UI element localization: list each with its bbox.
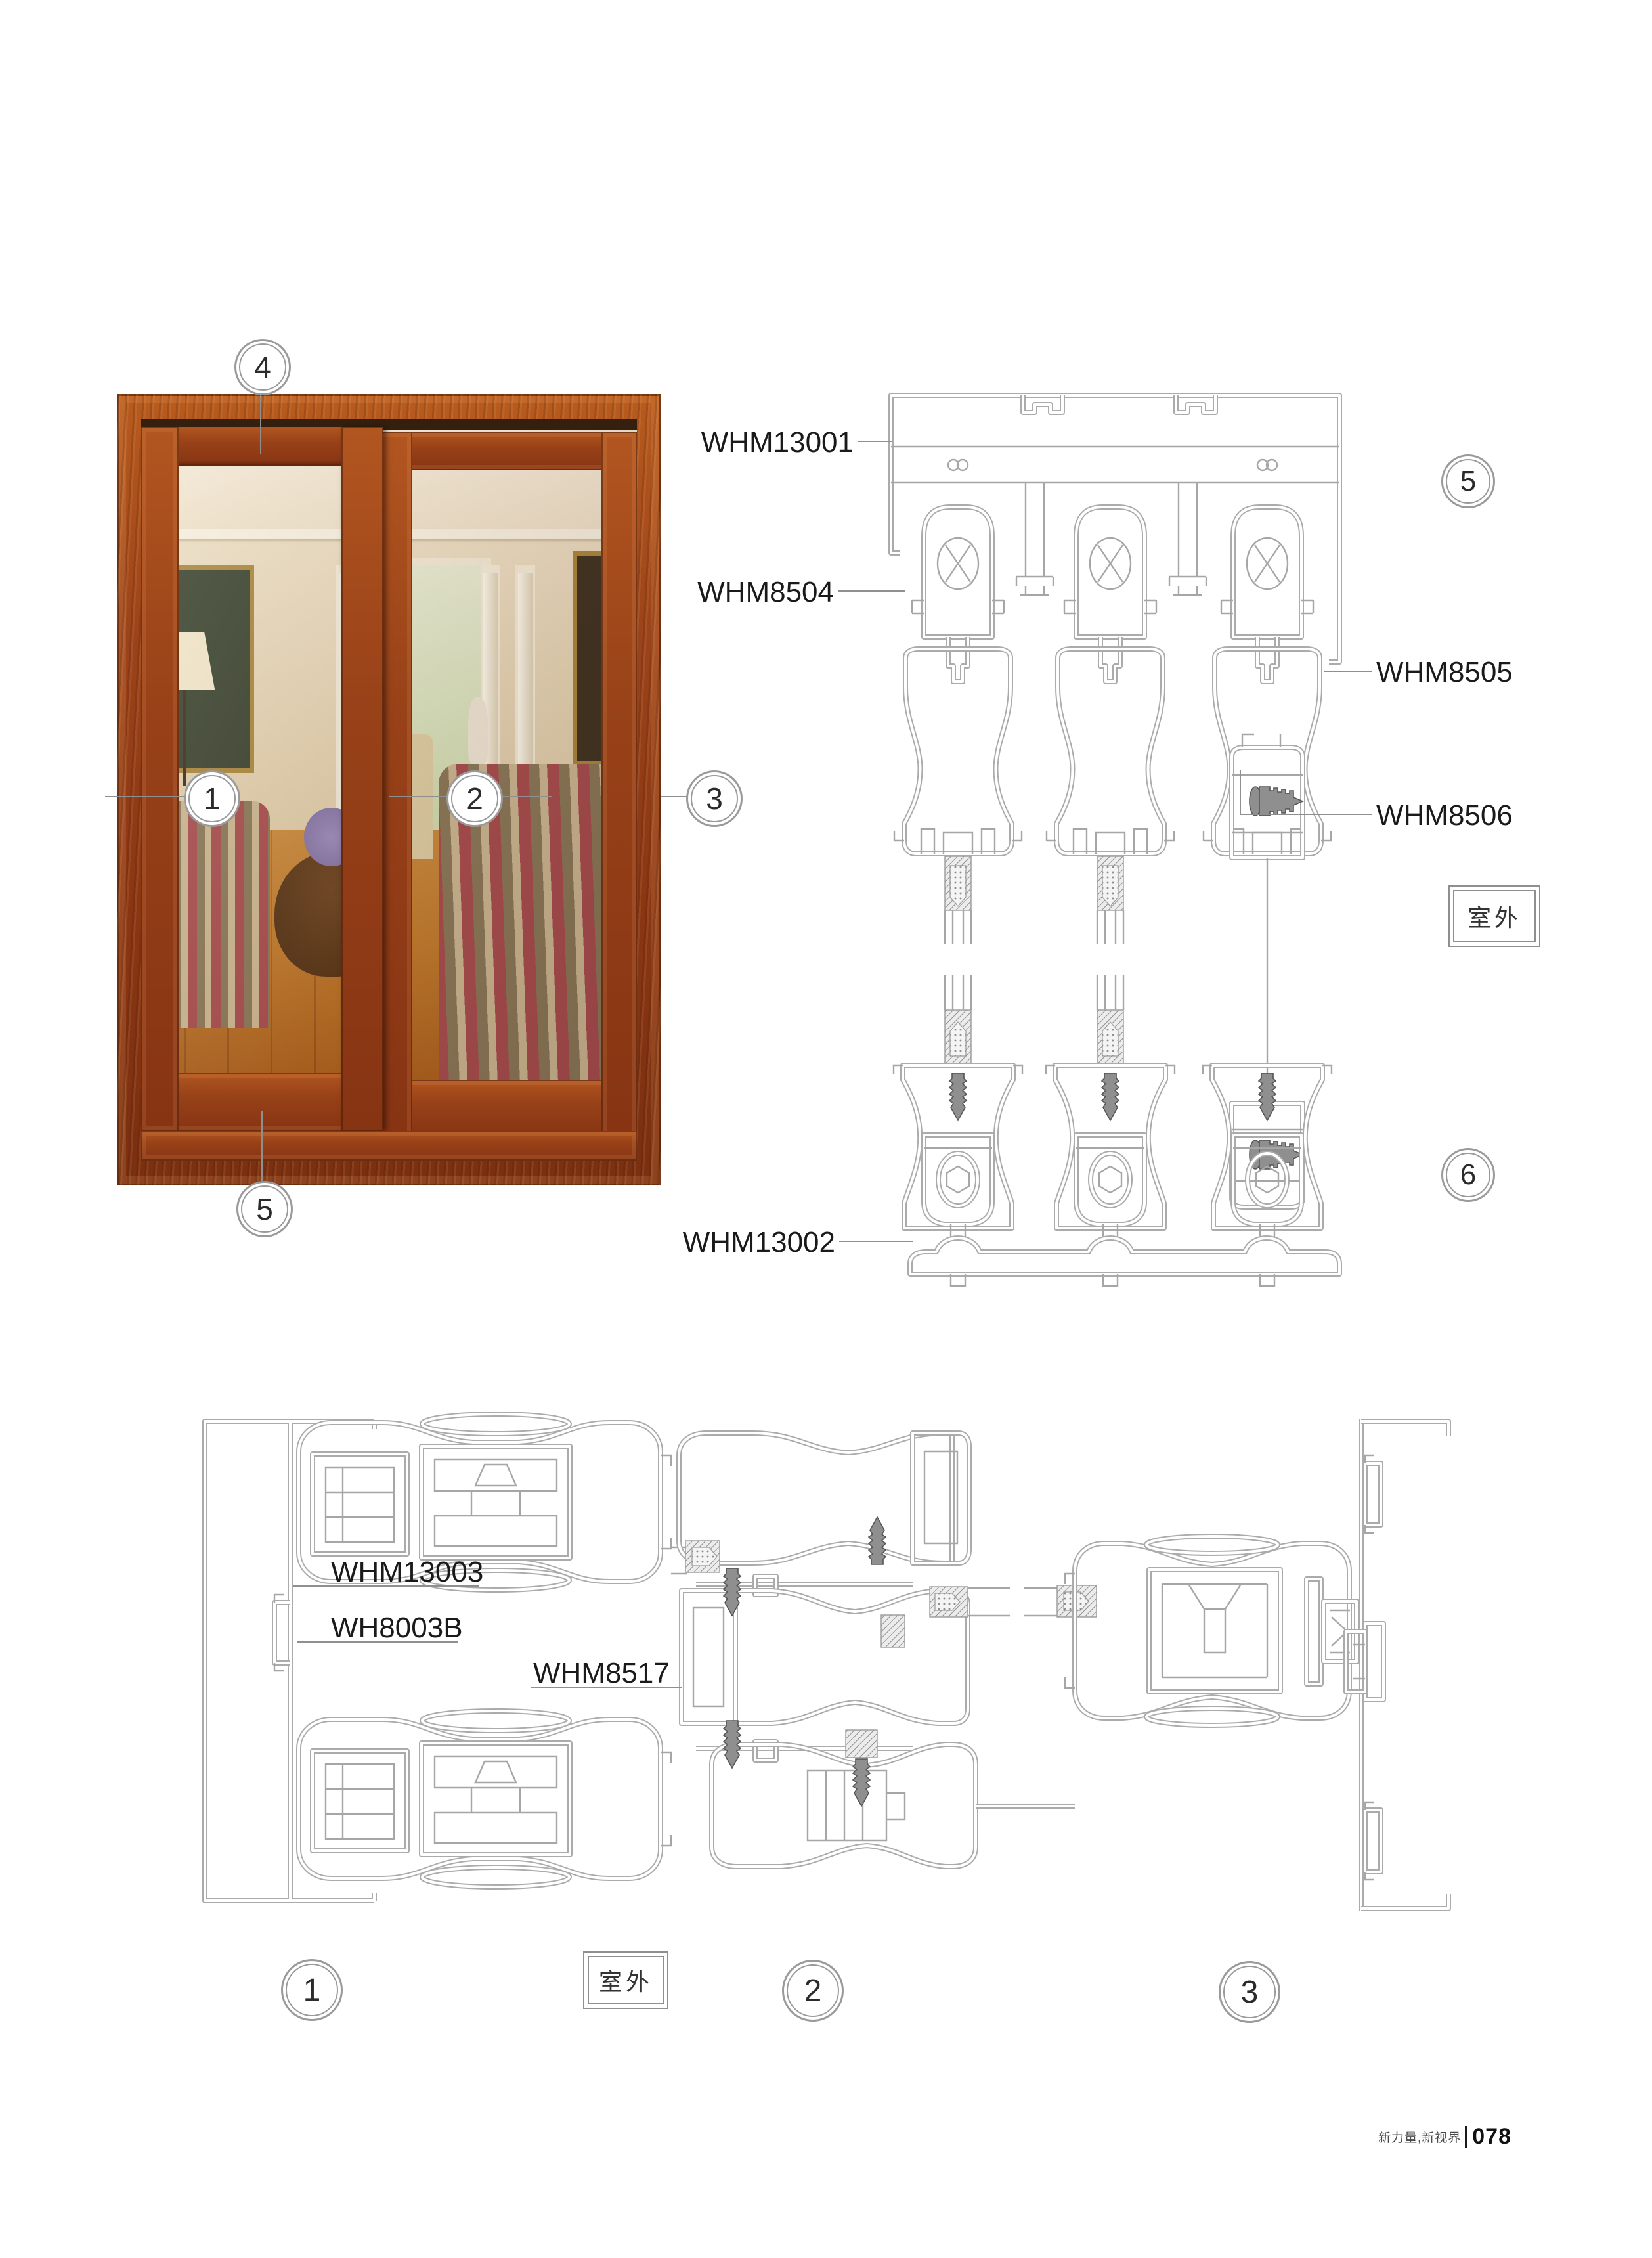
right-sash-right-stile: [601, 432, 637, 1136]
label-sash-profile: WHM8504: [697, 574, 834, 611]
leader-callout-3: [661, 796, 687, 797]
callout-circle-h2: 2: [782, 1960, 844, 2022]
leader-sash-profile: [838, 590, 905, 592]
left-jamb-profile: [205, 1421, 374, 1901]
label-interlock: WHM8506: [1376, 797, 1513, 834]
callout-circle-v5: 5: [1441, 454, 1495, 508]
callout-circle-h3: 3: [1219, 1961, 1280, 2023]
glass-and-meeting-stiles: [671, 1433, 1097, 1867]
footer-page-number: 078: [1472, 2124, 1511, 2150]
label-sash-profile-right: WHM8505: [1376, 654, 1513, 691]
leader-interlock-h: [1240, 814, 1372, 815]
page-footer: 新力量,新视界 078: [1378, 2124, 1511, 2150]
meeting-stile: [341, 427, 383, 1131]
bottom-track-profile: [910, 1238, 1339, 1286]
label-top-track: WHM13001: [701, 424, 854, 461]
vertical-section-drawing: [880, 381, 1353, 1300]
catalog-page: 4 1 2 3 5: [0, 0, 1652, 2258]
left-sash-left-stile: [141, 427, 179, 1131]
leader-callout-1: [105, 796, 185, 797]
label-bottom-track: WHM13002: [683, 1224, 835, 1261]
right-sash-top-rail: [378, 432, 636, 470]
lock-stile-cluster-right: [1065, 1536, 1357, 1725]
right-sash-bottom-rail: [378, 1080, 636, 1136]
callout-circle-4: 4: [234, 339, 291, 395]
leader-sash-profile-right: [1324, 671, 1372, 672]
horizontal-section-drawing: [190, 1412, 1497, 1931]
head-track-profile: [891, 395, 1339, 662]
footer-divider: [1465, 2126, 1467, 2148]
outdoor-box-horizontal: 室外: [583, 1951, 668, 2009]
footer-slogan: 新力量,新视界: [1378, 2128, 1461, 2146]
callout-circle-1: 1: [184, 770, 240, 827]
outdoor-box-vertical: 室外: [1448, 885, 1540, 947]
leader-jamb-profile: [297, 1641, 458, 1643]
leader-callout-5: [261, 1111, 263, 1181]
door-sill: [141, 1131, 637, 1161]
callout-circle-3: 3: [686, 770, 743, 827]
leader-meeting-stile: [531, 1687, 682, 1688]
interlock-cluster-bottom: [299, 1711, 671, 1887]
callout-circle-2: 2: [446, 770, 503, 827]
right-jamb-profile: [1346, 1419, 1448, 1911]
leader-interlock-v: [1240, 770, 1241, 815]
leader-top-track: [858, 441, 892, 442]
callout-circle-v6: 6: [1441, 1148, 1495, 1202]
callout-circle-h1: 1: [281, 1959, 343, 2021]
leader-callout-4: [260, 393, 261, 454]
leader-bottom-track: [839, 1241, 913, 1242]
leader-frame-profile: [293, 1585, 479, 1587]
callout-circle-5: 5: [236, 1181, 293, 1237]
